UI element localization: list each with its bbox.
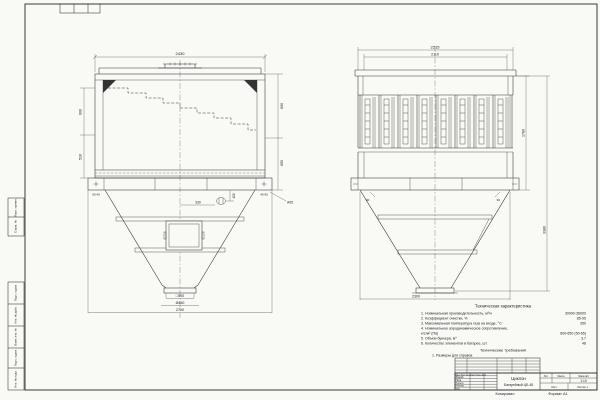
drawing-frame: Перв. примен. Справ. № Подп. и дата Инв.… (8, 4, 597, 390)
titleblock-product-line1: Циклон (511, 376, 526, 381)
dim-front-outlet-square: □500 (176, 294, 184, 298)
dim-side-total-height: 3380 (543, 226, 547, 234)
dim-front-right-lower: 650 (280, 160, 284, 166)
tech-item-value: 30000-36000 (565, 312, 586, 316)
stamp-label: Справ. № (14, 220, 18, 233)
titleblock-lit-label: Лит. (544, 375, 549, 378)
tech-item-value: 600-650 (50-65) (560, 332, 586, 336)
titleblock-row: Пров. (456, 380, 462, 382)
titleblock-header-row: Изм. Лист № докум. Подп. Дата (456, 373, 487, 376)
tech-title: Техническая характеристика (475, 304, 532, 309)
tech-item-label: 2. Коэффициент очистки, % (421, 317, 468, 321)
titleblock-row: Утв. (456, 389, 461, 391)
left-margin-stamps: Перв. примен. Справ. № Подп. и дата Инв.… (8, 198, 24, 390)
stamp-label: Подп. и дата (14, 349, 18, 366)
dim-front-detail-height: 100 (232, 193, 236, 199)
stamp-label: Инв. № дубл. (14, 306, 18, 324)
tech-item-label: кгс/м² (Па) (421, 332, 438, 336)
stamp-label: Подп. и дата (14, 284, 18, 301)
tech-item-value: 350 (580, 322, 586, 326)
top-left-stamp (60, 4, 100, 13)
drawing-sheet: Перв. примен. Справ. № Подп. и дата Инв.… (0, 0, 600, 400)
front-view: 2430 90 40 40 90 (79, 51, 294, 318)
tech-item-label: 1. Номинальная производительность, м³/ч (421, 312, 492, 316)
titleblock-sheets-label: Листов 1 (577, 385, 588, 389)
tech-item-value: 48 (582, 342, 586, 346)
dim-front-foot-right: 40 90 (260, 193, 268, 197)
tech-item-value: 3,7 (581, 337, 586, 341)
dim-side-top-inner: 2110 (431, 53, 439, 57)
stamp-label: Инв. № подл. (14, 370, 18, 388)
titleblock-row: Т.контр. (456, 383, 465, 385)
dim-side-corner-right: 90 (497, 198, 501, 202)
weld-note: А05 (287, 201, 293, 205)
titleblock-scale-value: 1:10 (580, 379, 587, 383)
dim-front-left-upper: 600 (79, 109, 83, 115)
tech-item-label: 4. Номинальное аэродинамическое сопротив… (421, 327, 508, 331)
titleblock-scale-label: Масштаб (578, 375, 589, 378)
tech-characteristics-block: Техническая характеристика 1. Номинальна… (421, 304, 586, 358)
side-view: 2215 2110 17 (351, 45, 550, 301)
titleblock-product-line2: Батарейный ЦБ-48 (504, 383, 533, 387)
dim-side-corner-left: 90 (366, 198, 370, 202)
stamp-label: Перв. примен. (14, 198, 18, 217)
stamp-label: Взам. инв. № (14, 328, 18, 345)
dim-front-foot-left: 90 40 (92, 193, 100, 197)
titleblock-row: Разраб. (456, 377, 465, 379)
dim-side-body-height: 1780 (522, 129, 526, 137)
tech-requirements-item: 1. Размеры для справок. (432, 354, 473, 358)
copied-label: Копировал (495, 392, 514, 396)
dim-front-detail-offset: 330 (195, 201, 201, 205)
tech-item-label: 6. Количество элементов в батарее, шт (421, 342, 487, 346)
titleblock-row: Н.контр. (456, 386, 465, 388)
title-block: Изм. Лист № докум. Подп. Дата Разраб. Пр… (455, 358, 597, 391)
dim-front-top-width: 2430 (176, 51, 186, 56)
dim-side-bottom-width: 2300 (412, 295, 420, 299)
bottom-margin: Копировал Формат А1 (495, 392, 567, 396)
tech-item-value: 85-95 (577, 317, 586, 321)
dim-front-left-lower: 510 (79, 154, 83, 160)
titleblock-mass-label: Масса (557, 375, 565, 378)
titleblock-sheet-label: Лист (551, 385, 557, 389)
tech-requirements-title: Технические требования (480, 348, 526, 353)
tech-item-label: 5. Объем бункера, м³ (421, 337, 457, 341)
tech-item-label: 3. Максимальная температура газа на вход… (421, 322, 502, 326)
dim-front-right-upper: 600 (280, 103, 284, 109)
format-label: Формат А1 (548, 392, 567, 396)
dim-side-top-outer: 2215 (431, 45, 441, 50)
dim-front-bottom-width: 2700 (176, 308, 184, 312)
dim-front-outlet-dia: Ø450 (176, 301, 185, 305)
